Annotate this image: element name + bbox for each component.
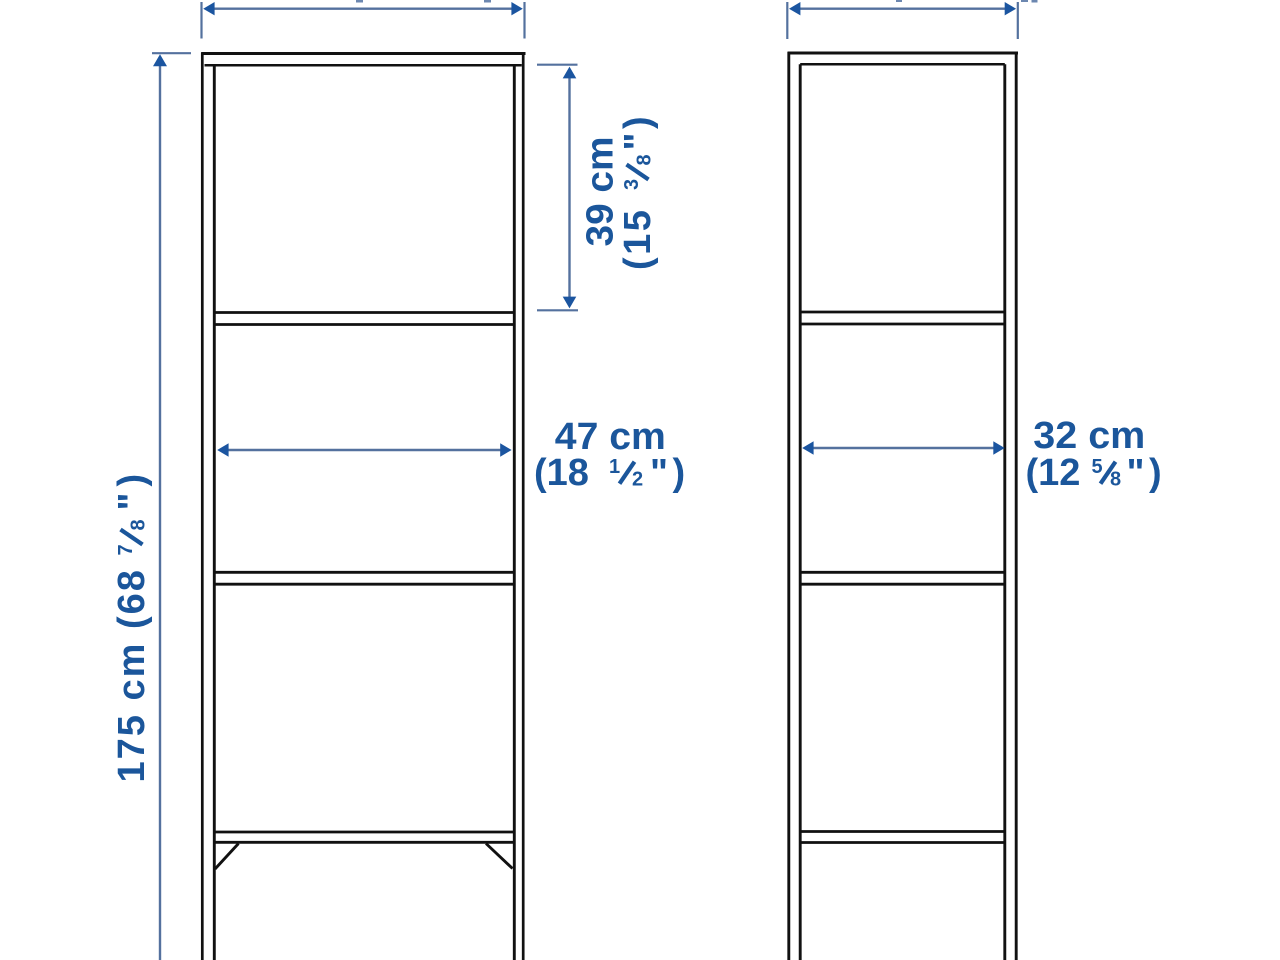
svg-text:7: 7: [115, 544, 137, 555]
svg-text:"): "): [650, 452, 690, 494]
svg-text:8: 8: [128, 519, 150, 530]
svg-text:(12: (12: [1026, 452, 1081, 494]
svg-text:32 cm: 32 cm: [1033, 415, 1145, 457]
svg-text:"): "): [111, 468, 153, 511]
svg-text:1: 1: [609, 456, 620, 478]
svg-text:39 cm: 39 cm: [580, 137, 622, 247]
svg-text:8: 8: [634, 154, 656, 165]
svg-text:175 cm (68: 175 cm (68: [111, 568, 153, 782]
svg-text:2: 2: [632, 469, 643, 491]
svg-text:"): "): [617, 113, 659, 151]
svg-text:8: 8: [1110, 469, 1121, 491]
svg-text:"): "): [1127, 452, 1167, 494]
svg-text:5: 5: [1092, 456, 1103, 478]
svg-text:(18: (18: [534, 452, 589, 494]
svg-text:(15: (15: [617, 208, 659, 270]
svg-text:3: 3: [621, 179, 643, 190]
